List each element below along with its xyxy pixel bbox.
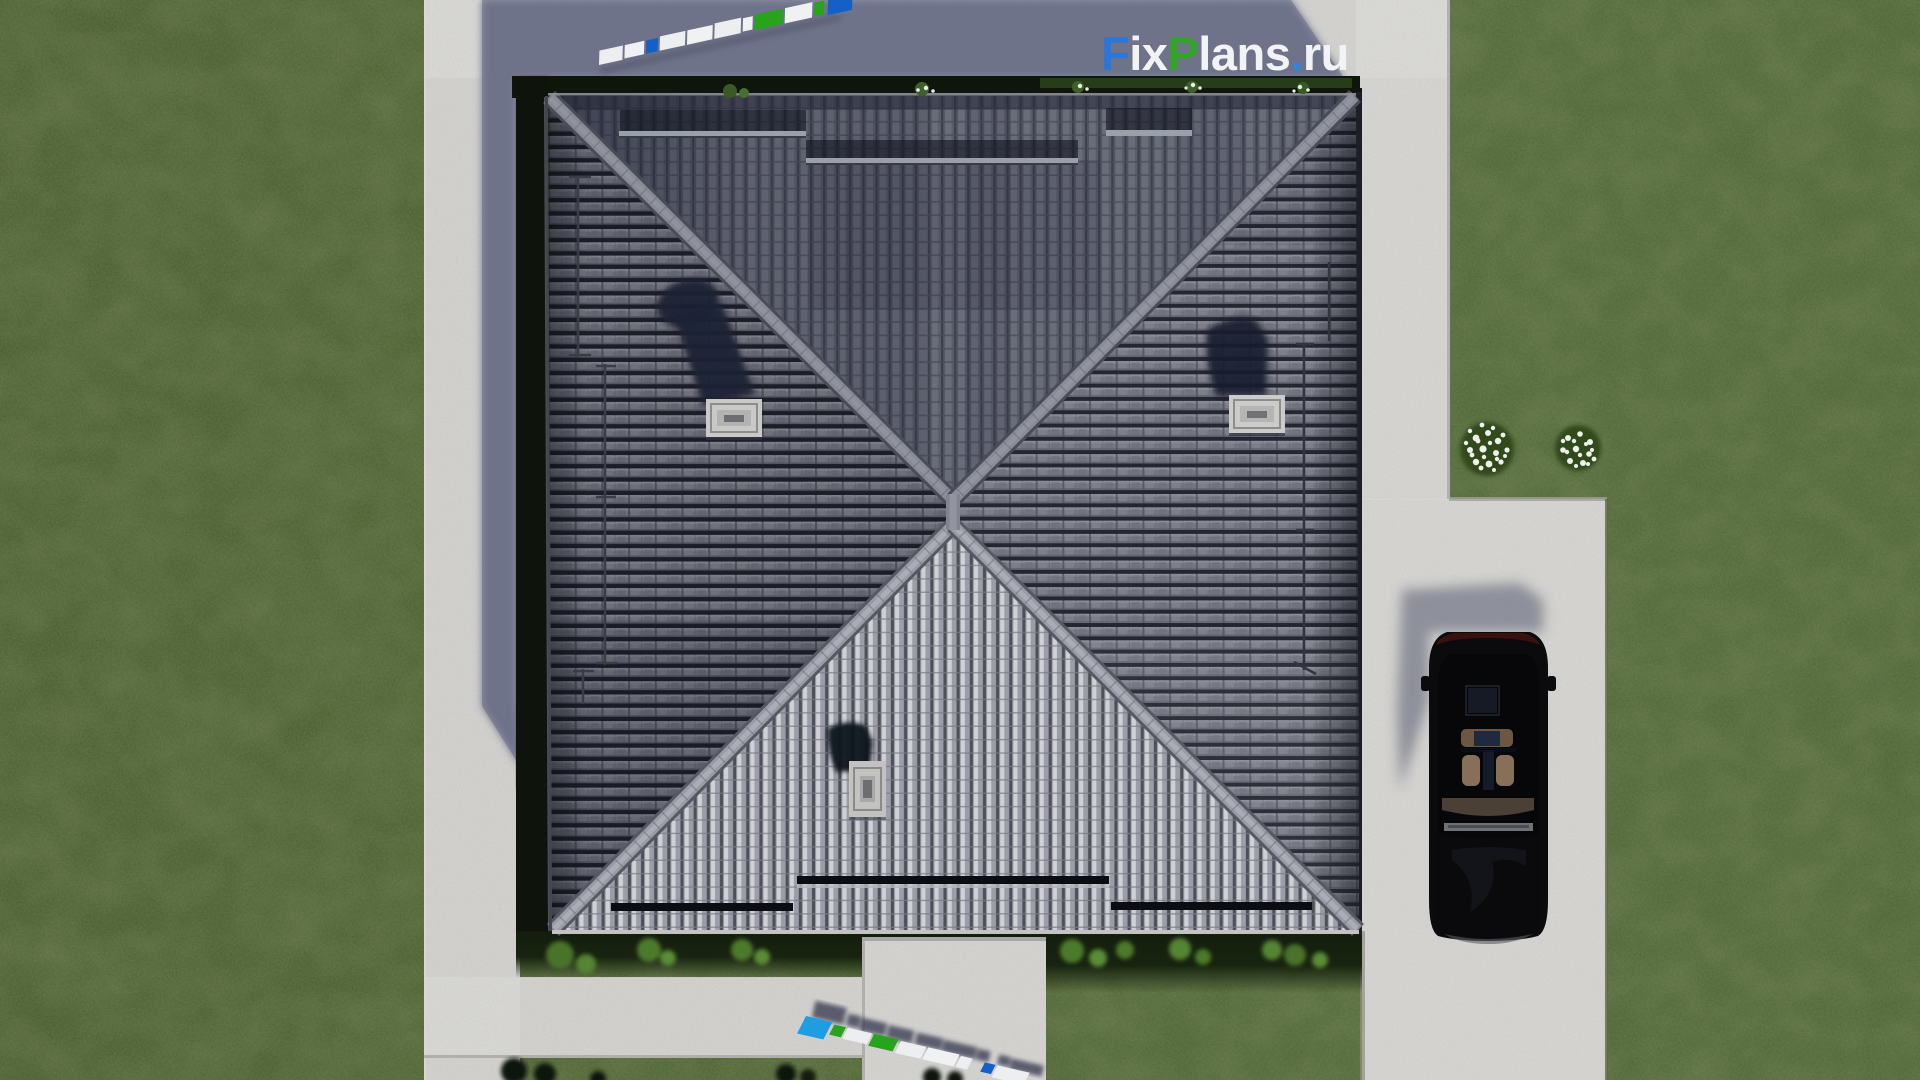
svg-text:FixPlans.ru: FixPlans.ru — [1101, 27, 1349, 80]
